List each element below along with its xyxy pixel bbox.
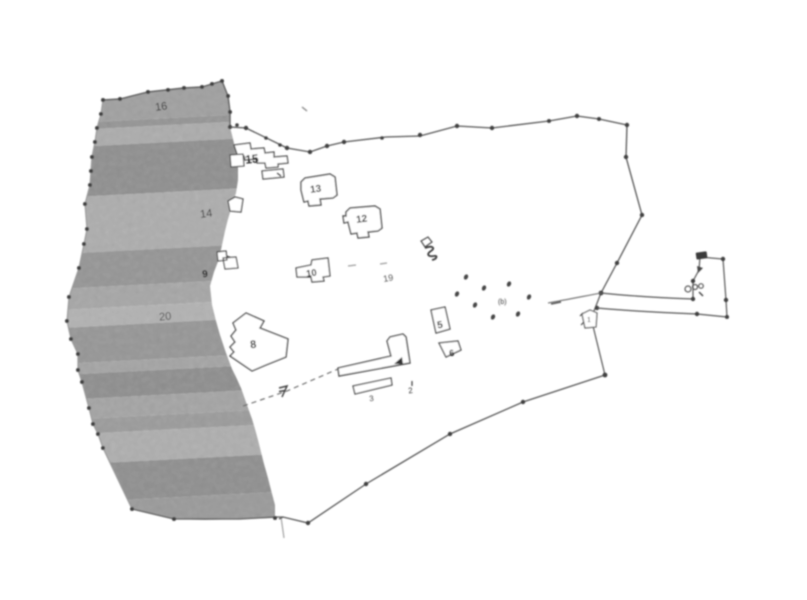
svg-text:20: 20 [159, 311, 172, 324]
svg-text:14: 14 [199, 207, 213, 220]
svg-text:16: 16 [154, 100, 168, 114]
svg-text:10: 10 [306, 268, 318, 280]
svg-text:13: 13 [310, 183, 323, 195]
svg-text:(b): (b) [498, 299, 507, 306]
svg-text:15: 15 [244, 151, 259, 166]
svg-text:19: 19 [382, 272, 394, 284]
svg-text:3: 3 [369, 394, 375, 404]
svg-text:2: 2 [408, 386, 414, 396]
svg-text:1: 1 [587, 317, 591, 324]
svg-text:12: 12 [356, 213, 369, 225]
